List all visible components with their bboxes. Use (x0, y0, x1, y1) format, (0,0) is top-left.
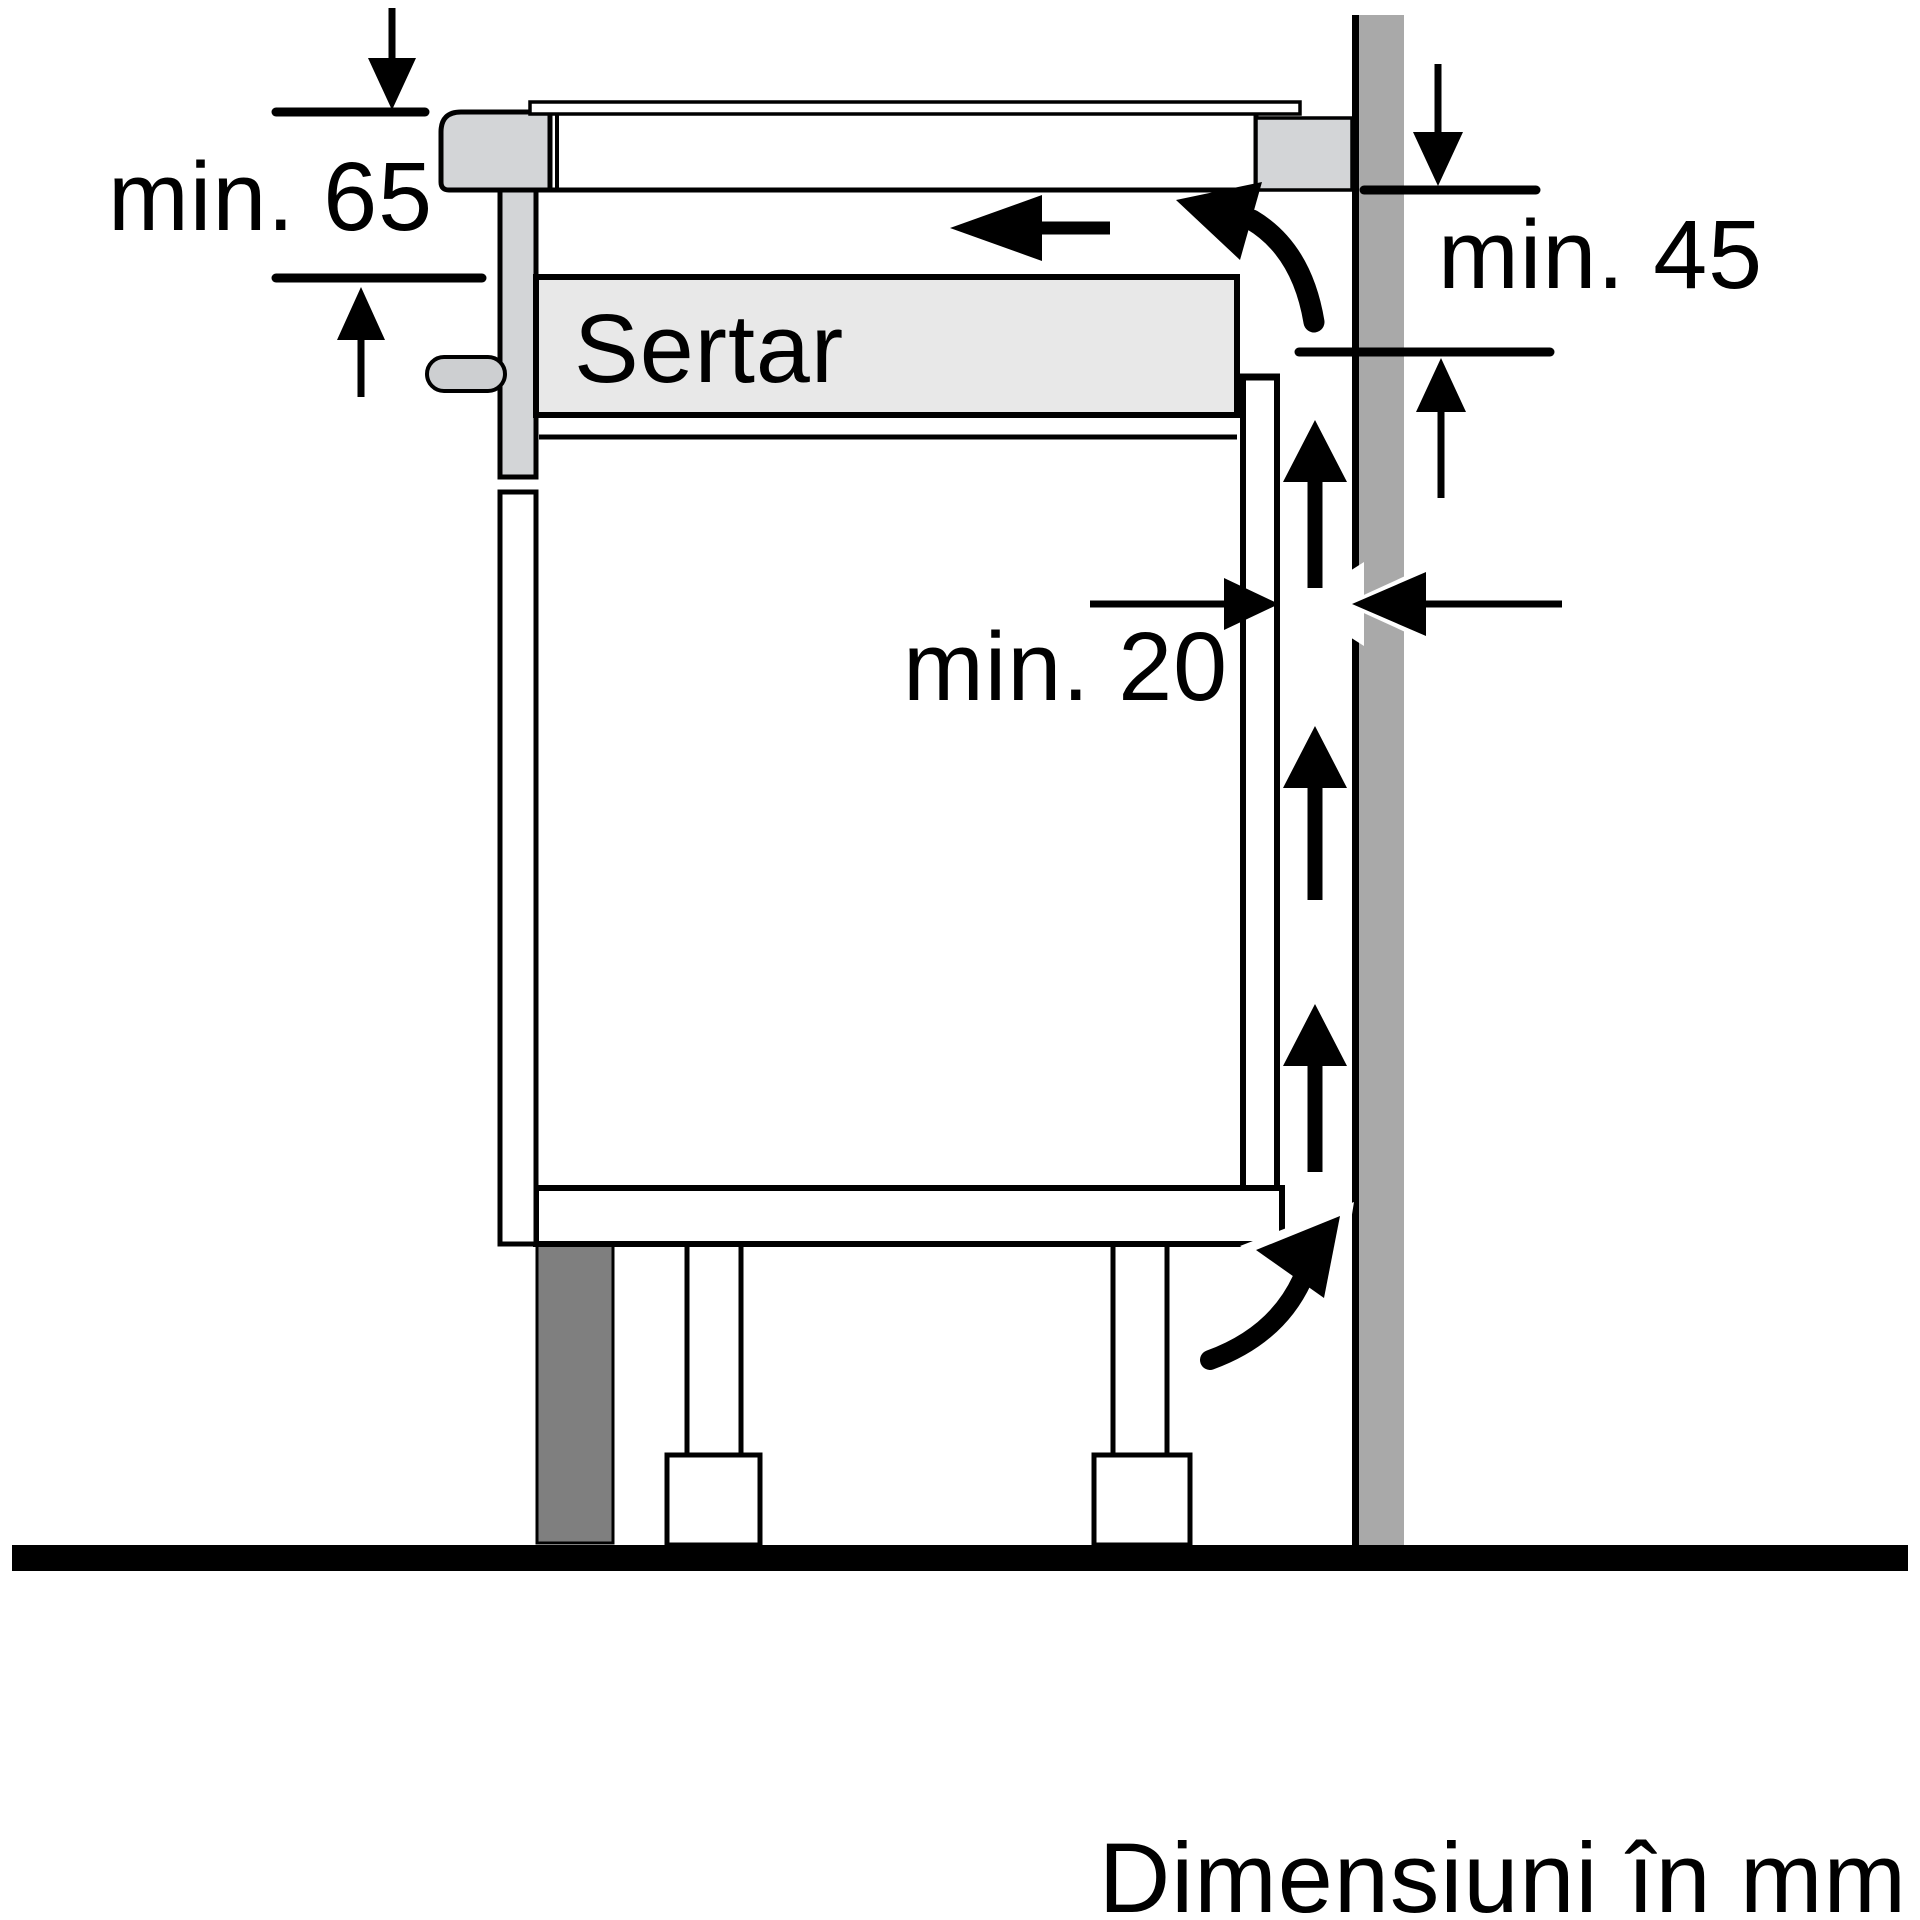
cabinet-side-panel-upper (500, 190, 536, 477)
label-clearance-65: min. 65 (108, 148, 433, 245)
worktop (550, 112, 1256, 190)
dim-65-arrow-down (368, 8, 416, 110)
label-drawer: Sertar (574, 300, 844, 397)
cabinet-leg-front (667, 1244, 760, 1545)
dim-20-arrow-left (1298, 562, 1562, 646)
connector-stub (427, 357, 505, 391)
hob-glass-top (530, 102, 1300, 114)
label-clearance-45: min. 45 (1438, 206, 1763, 303)
cabinet-side-panel-lower (500, 492, 536, 1244)
caption-units: Dimensiuni în mm (1099, 1828, 1907, 1920)
worktop-end-filler (1256, 118, 1352, 190)
hob-left-cap (441, 112, 550, 190)
wall-edge-line (1352, 15, 1359, 1545)
floor-line (12, 1545, 1908, 1571)
dim-45-arrow-down (1413, 64, 1463, 186)
dim-65-arrow-up (337, 287, 385, 397)
plinth-panel (537, 1244, 613, 1543)
dim-45-arrow-up (1416, 358, 1466, 498)
cabinet-back-panel (1240, 377, 1280, 1190)
airflow-arrow-up-1 (1283, 420, 1347, 588)
label-clearance-20: min. 20 (903, 618, 1228, 715)
airflow-arrow-up-2 (1283, 726, 1347, 900)
cabinet-leg-rear (1094, 1244, 1190, 1545)
cabinet-bottom-panel (536, 1188, 1282, 1244)
airflow-arrow-left (950, 195, 1110, 261)
wall (1352, 15, 1404, 1545)
airflow-arrow-up-3 (1283, 1004, 1347, 1172)
installation-diagram: min. 65 min. 45 min. 20 Sertar Dimensiun… (0, 0, 1920, 1920)
